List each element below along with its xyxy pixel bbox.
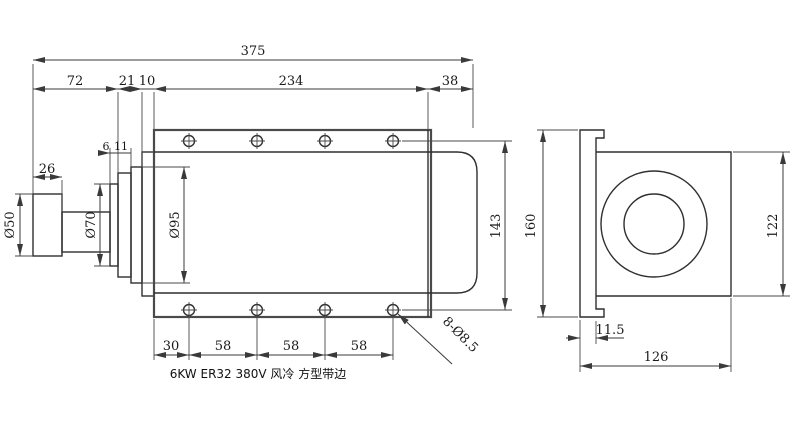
drawing-title: 6KW ER32 380V 风冷 方型带边: [170, 366, 347, 381]
collar-ring-outline: [110, 184, 118, 266]
dim-body-length: 234: [279, 74, 304, 89]
dim-total-length: 375: [241, 44, 266, 59]
dim-collar-diameter: Ø70: [84, 211, 99, 238]
front-flange-ring-outline: [131, 167, 142, 283]
dim-flange-height: 160: [524, 214, 539, 239]
hole-callout: 8-Ø8.5: [439, 314, 481, 356]
dim-front-cap: 21: [119, 74, 136, 89]
front-cap-outline: [118, 173, 131, 277]
dim-front-plate: 10: [139, 74, 156, 89]
side-body-outline: [596, 152, 731, 296]
dim-cap-step: 11: [114, 140, 128, 153]
dim-pitch-2: 58: [283, 339, 300, 354]
dimension-texts: 375 72 21 10 234 38 26 6 11 Ø50 Ø70 Ø95 …: [3, 44, 781, 381]
dim-nut-diameter: Ø50: [3, 211, 18, 238]
collet-nut-outline: [33, 194, 62, 256]
dim-front-flange-diameter: Ø95: [168, 211, 183, 238]
dim-edge-offset: 30: [163, 339, 180, 354]
mounting-flange-plate-outline: [154, 130, 431, 317]
dim-hole-row-spacing: 143: [489, 214, 504, 239]
dim-rear-cover: 38: [442, 74, 459, 89]
dim-nut-length: 26: [39, 162, 56, 177]
dim-collar-step: 6: [103, 140, 110, 153]
dim-body-height: 122: [766, 214, 781, 239]
dimension-lines: [20, 60, 783, 366]
dim-shaft-section: 72: [67, 74, 84, 89]
side-view: [580, 130, 731, 317]
mounting-holes: [181, 133, 401, 318]
engineering-drawing-page: 375 72 21 10 234 38 26 6 11 Ø50 Ø70 Ø95 …: [0, 0, 796, 426]
dim-flange-thickness: 11.5: [596, 323, 625, 338]
dim-pitch-3: 58: [351, 339, 368, 354]
front-plate-outline: [142, 152, 154, 296]
dim-pitch-1: 58: [215, 339, 232, 354]
dim-body-width: 126: [644, 350, 669, 365]
hole-crosshairs: [181, 133, 401, 318]
rotor-bore-circle: [624, 194, 684, 254]
spindle-motor-drawing: 375 72 21 10 234 38 26 6 11 Ø50 Ø70 Ø95 …: [0, 0, 796, 426]
stator-bore-circle: [601, 171, 707, 277]
